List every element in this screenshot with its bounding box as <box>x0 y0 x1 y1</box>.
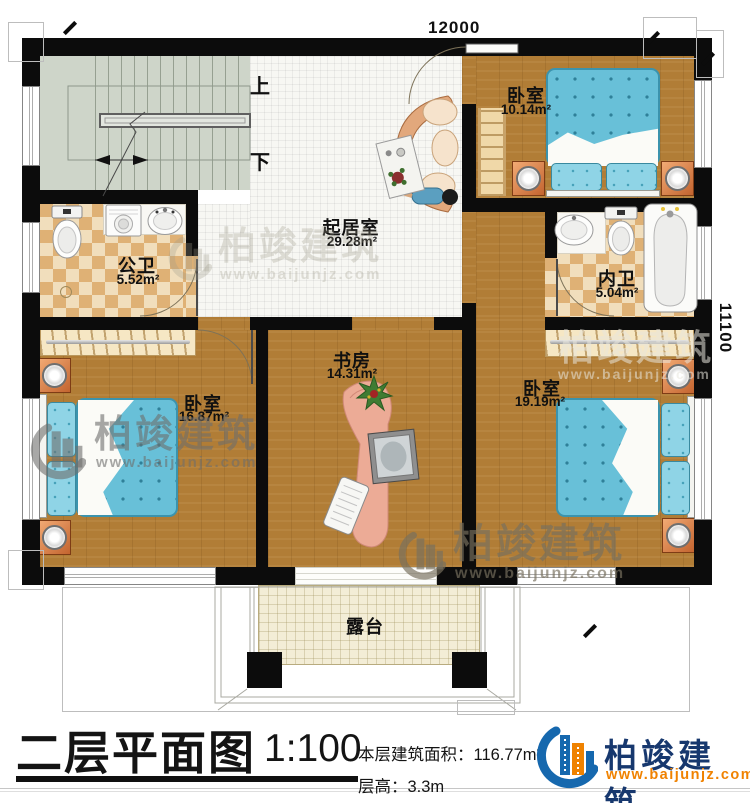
watermark-url: www.baijunjz.com <box>96 454 258 472</box>
extension-line-box <box>8 22 44 62</box>
watermark-brand: 柏竣建筑 <box>558 330 714 366</box>
company-name: 柏竣建筑 <box>604 729 750 803</box>
sink-private <box>555 215 593 245</box>
terrace-railing <box>215 587 520 710</box>
watermark-url: www.baijunjz.com <box>220 266 382 284</box>
room-area-study: 14.31m² <box>297 366 407 381</box>
room-area-bedroom-br: 19.19m² <box>485 394 595 409</box>
extension-line-box <box>643 17 697 59</box>
floor-height-label: 层高： <box>358 778 408 796</box>
watermark-url: www.baijunjz.com <box>455 564 625 583</box>
floor-height-row: 层高：3.3m <box>358 773 444 797</box>
watermark-brand: 柏竣建筑 <box>94 416 258 454</box>
watermark-logo-icon <box>30 418 86 488</box>
study-desk <box>323 381 419 547</box>
room-area-private-bath: 5.04m² <box>562 285 672 300</box>
floor-area-row: 本层建筑面积：116.77m² <box>358 741 542 765</box>
watermark-living: 柏竣建筑 www.baijunjz.com <box>168 228 382 284</box>
company-logo-icon <box>536 725 598 793</box>
plan-scale: 1:100 <box>264 727 362 771</box>
watermark-bedroom-right-top: 柏竣建筑 www.baijunjz.com <box>558 330 714 383</box>
title-block: 二层平面图 1:100 本层建筑面积：116.77m² 层高：3.3m 柏竣建筑… <box>0 715 750 803</box>
floor-plan-page: 上 下 卧室 10.14m² 公卫 5.52m² 起居室 29.28m² 内卫 … <box>0 0 750 803</box>
title-underline <box>16 776 358 782</box>
floor-height-value: 3.3m <box>408 778 445 796</box>
floor-drain <box>61 287 72 298</box>
stair-symbols <box>68 86 250 196</box>
watermark-brand: 柏竣建筑 <box>453 524 625 564</box>
floor-area-label: 本层建筑面积： <box>358 746 474 764</box>
floor-area-value: 116.77m² <box>474 746 542 764</box>
watermark-url: www.baijunjz.com <box>558 366 714 383</box>
watermark-brand: 柏竣建筑 <box>218 228 382 266</box>
room-area-bedroom-tr: 10.14m² <box>471 102 581 117</box>
toilet-public <box>52 206 82 258</box>
watermark-bedroom-left: 柏竣建筑 www.baijunjz.com <box>30 416 258 472</box>
plan-title: 二层平面图 <box>16 717 256 783</box>
coffee-table <box>376 135 424 198</box>
extension-line-box <box>696 30 724 78</box>
washing-machine <box>106 205 141 236</box>
room-label-terrace: 露台 <box>310 613 420 639</box>
stair-up-label: 上 <box>250 70 270 99</box>
floor-plan-drawing: 上 下 卧室 10.14m² 公卫 5.52m² 起居室 29.28m² 内卫 … <box>0 0 750 715</box>
company-url: www.baijunjz.com <box>606 767 750 783</box>
watermark-logo-icon <box>168 232 212 288</box>
watermark-bottom: 柏竣建筑 www.baijunjz.com <box>398 524 625 583</box>
stair-down-label: 下 <box>250 146 270 175</box>
dimension-top: 12000 <box>428 18 480 38</box>
watermark-logo-icon <box>398 526 446 588</box>
extension-line-box <box>8 550 44 590</box>
toilet-private <box>605 207 637 255</box>
dimension-right: 11100 <box>715 303 735 353</box>
extension-line-box <box>457 700 515 715</box>
